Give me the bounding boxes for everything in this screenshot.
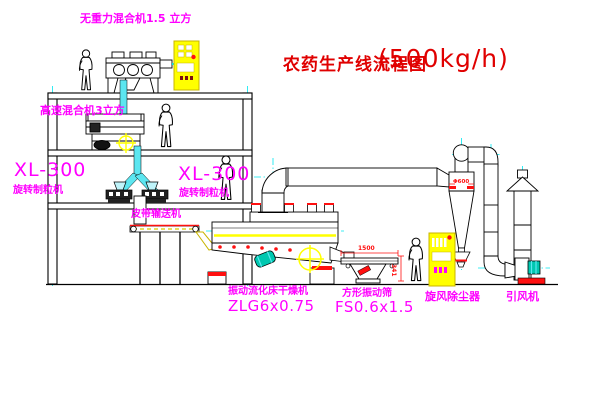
label-dryer-model: ZLG6x0.75: [228, 299, 315, 314]
belt-conveyor: [130, 226, 216, 285]
indicator-light-icon: [447, 235, 451, 239]
indicator-light-icon: [191, 55, 195, 59]
cad-flowsheet-canvas: 农药生产线流程图 (500kg/h) 无重力混合机1.5 立方 高速混合机3立方…: [0, 0, 600, 403]
label-granulator-right-model: XL-300: [178, 165, 250, 184]
label-cyclone: 旋风除尘器: [425, 291, 480, 302]
high-speed-mixer: [86, 114, 144, 150]
label-high-speed-mixer: 高速混合机3立方: [40, 105, 125, 116]
label-fan: 引风机: [506, 291, 539, 302]
duct-ball-joint: [453, 145, 469, 161]
label-granulator-left-model: XL-300: [14, 161, 86, 180]
label-belt-conveyor: 皮带输送机: [131, 210, 181, 220]
label-gravity-mixer: 无重力混合机1.5 立方: [80, 13, 191, 24]
label-granulator-left-name: 旋转制粒机: [13, 186, 63, 196]
dim-screen-length: 1500: [358, 246, 375, 252]
label-dryer-name: 振动流化床干燥机: [228, 287, 308, 297]
worker-figure: [79, 50, 92, 90]
label-granulator-right-name: 旋转制粒机: [179, 189, 229, 199]
fluid-bed-dryer: [208, 204, 350, 284]
control-cabinet-upper: [174, 41, 199, 90]
control-cabinet-lower: [429, 233, 455, 286]
drawing-title-capacity: (500kg/h): [378, 44, 509, 73]
worker-figure: [409, 238, 423, 280]
cyclone-to-fan-duct: [468, 147, 505, 276]
induced-draft-fan: [505, 258, 545, 284]
dim-cyclone-width: Φ600: [453, 180, 469, 186]
label-screen-model: FS0.6x1.5: [335, 300, 414, 315]
worker-figure: [159, 104, 173, 146]
gravity-mixer: [106, 52, 172, 93]
dim-screen-height: 341: [390, 264, 396, 277]
